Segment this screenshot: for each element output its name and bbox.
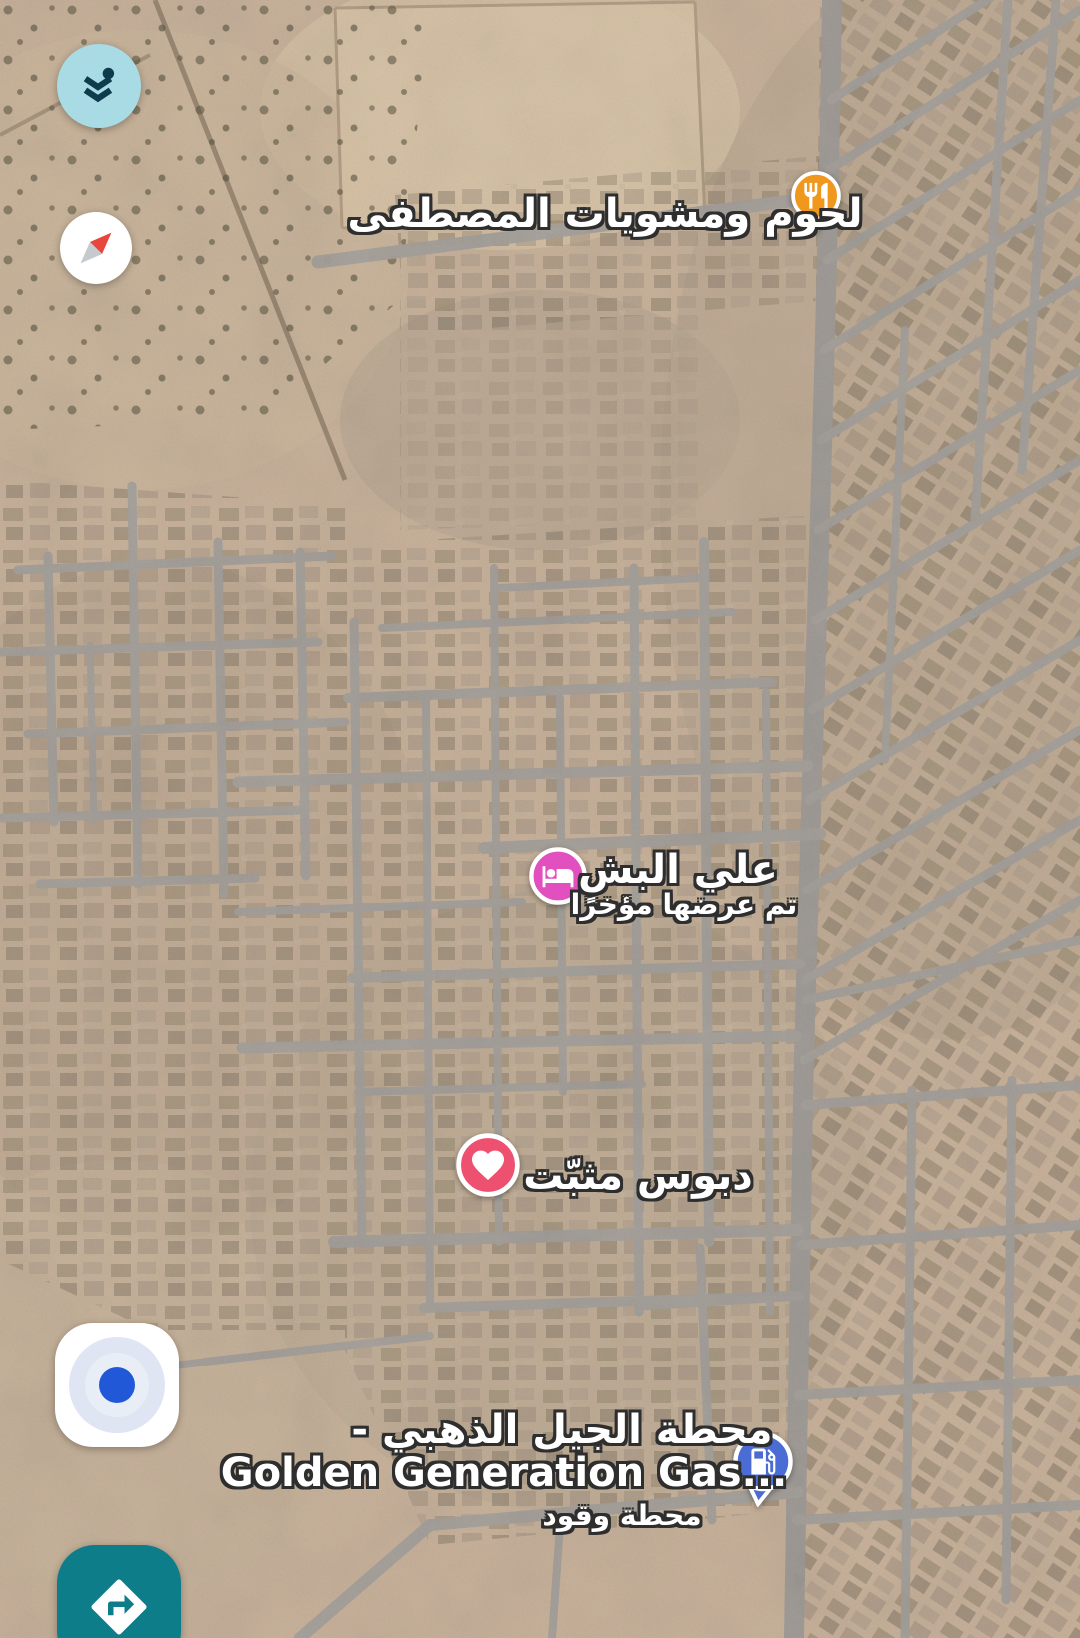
restaurant-label[interactable]: لحوم ومشويات المصطفى: [348, 194, 863, 234]
directions-icon: [86, 1574, 152, 1638]
maps-app-screen: لحوم ومشويات المصطفى علي البش تم عرضها م…: [0, 0, 1080, 1638]
gas-station-sublabel: محطة وقود: [542, 1502, 701, 1530]
gas-station-label-latin[interactable]: Golden Generation Gas...: [221, 1453, 787, 1493]
layers-icon: [74, 61, 124, 111]
pinned-label[interactable]: دبوس مثبّت: [523, 1156, 753, 1196]
my-location-button[interactable]: [55, 1323, 179, 1447]
heart-icon: [456, 1133, 520, 1197]
hotel-sublabel: تم عرضها مؤخرًا: [571, 891, 798, 919]
compass-icon: [68, 220, 124, 276]
compass-button[interactable]: [60, 212, 132, 284]
location-dot: [99, 1367, 135, 1403]
layers-button[interactable]: [57, 44, 141, 128]
directions-button[interactable]: [57, 1545, 181, 1638]
hotel-label[interactable]: علي البش: [578, 850, 778, 890]
my-location-icon: [69, 1337, 165, 1433]
gas-station-label-arabic[interactable]: محطة الجيل الذهبي -: [351, 1410, 772, 1450]
pinned-heart-pin[interactable]: [456, 1133, 520, 1201]
